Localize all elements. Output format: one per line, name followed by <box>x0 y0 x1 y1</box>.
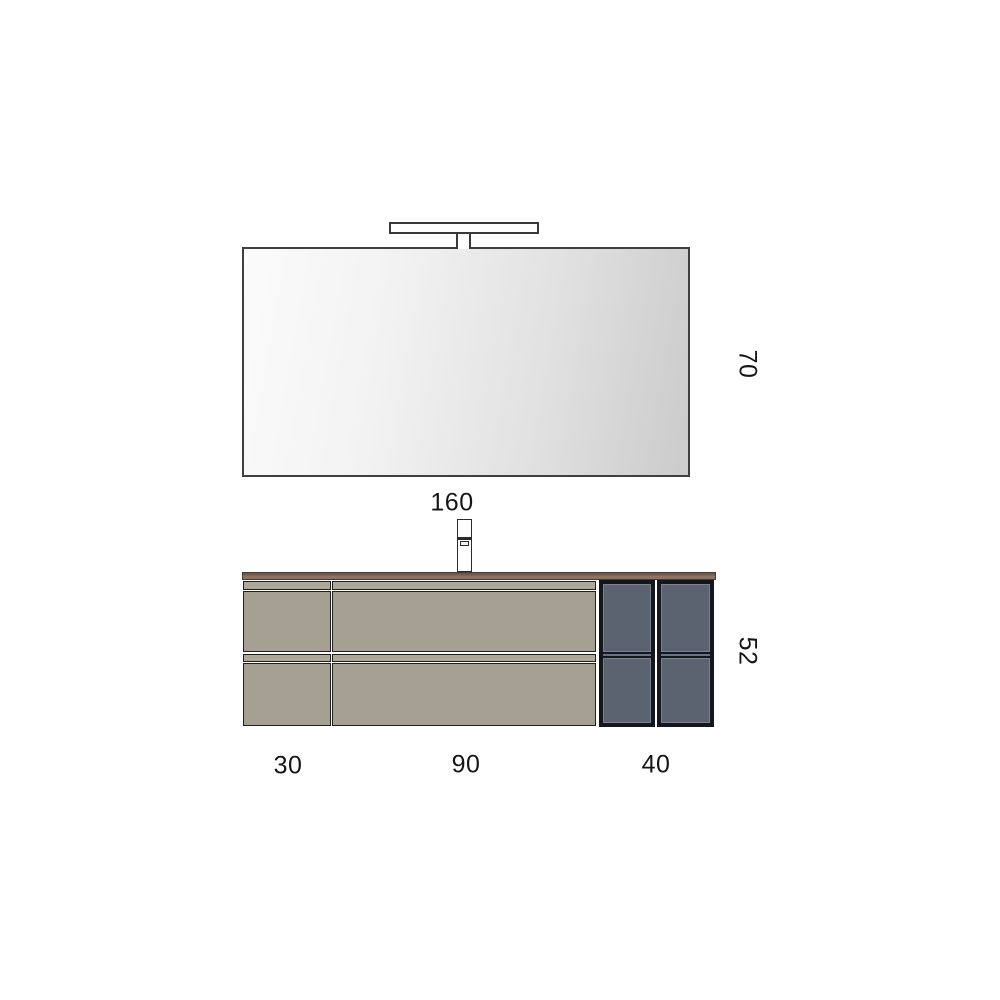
dimension-mirror-height: 70 <box>735 350 760 379</box>
open-shelf-column-2 <box>657 580 714 727</box>
faucet <box>457 519 472 572</box>
shelf-panel-2-bottom <box>661 658 710 723</box>
dimension-left-module-width: 30 <box>274 754 303 779</box>
drawer-strip-left-upper <box>243 581 331 590</box>
drawer-face-left-lower <box>243 663 331 726</box>
faucet-collar <box>458 537 471 540</box>
countertop <box>242 572 716 580</box>
dimension-overall-width: 160 <box>430 491 473 516</box>
shelf-rail-line-2 <box>661 654 710 656</box>
faucet-spout <box>460 541 469 547</box>
shelf-panel-1-top <box>603 584 651 652</box>
shelf-rail-line-1 <box>603 654 651 656</box>
dimension-right-module-width: 40 <box>642 753 671 778</box>
dimension-cabinet-height: 52 <box>735 637 760 666</box>
wall-light-bar <box>389 222 539 234</box>
wall-light-stem <box>456 233 471 249</box>
drawer-strip-center-lower <box>332 654 596 662</box>
shelf-panel-1-bottom <box>603 658 651 723</box>
drawer-strip-left-lower <box>243 654 331 662</box>
vanity-dimension-diagram: 70 160 52 30 90 40 <box>0 0 1000 1000</box>
drawer-face-center-lower <box>332 663 596 726</box>
drawer-face-center-upper <box>332 591 596 652</box>
shelf-panel-2-top <box>661 584 710 652</box>
open-shelf-column-1 <box>599 580 655 727</box>
drawer-strip-center-upper <box>332 581 596 590</box>
mirror <box>242 247 690 477</box>
drawer-face-left-upper <box>243 591 331 652</box>
dimension-center-module-width: 90 <box>452 753 481 778</box>
